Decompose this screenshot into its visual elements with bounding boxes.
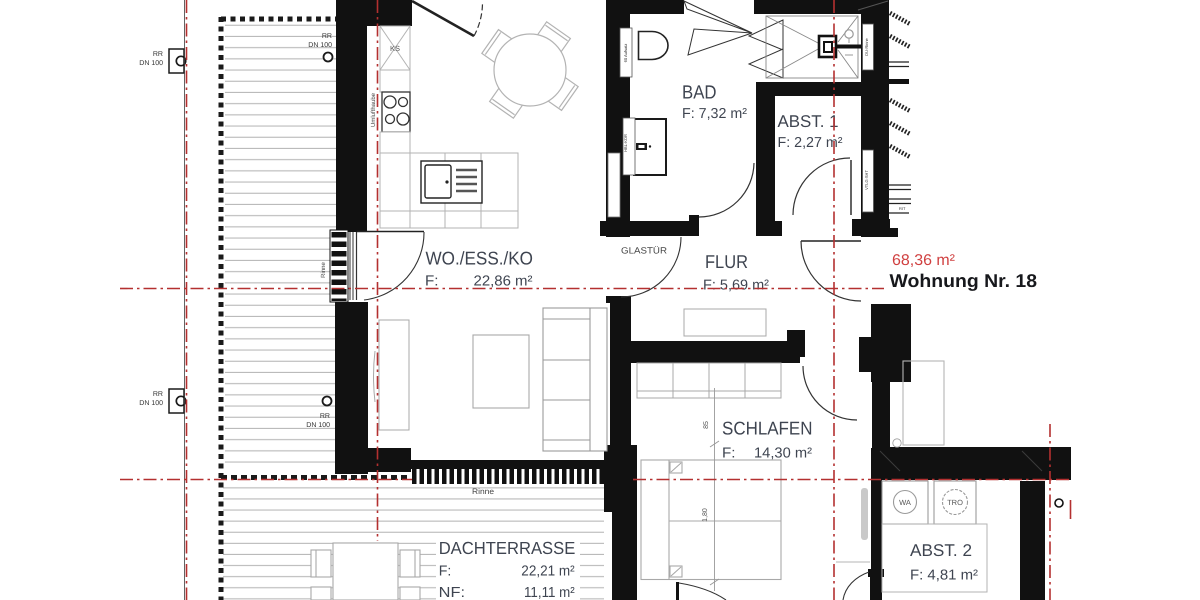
svg-text:RR: RR [320,413,330,420]
svg-text:SCHLAFEN: SCHLAFEN [722,418,813,439]
svg-text:ABST. 1: ABST. 1 [778,112,839,131]
svg-text:22,21 m²: 22,21 m² [521,564,575,580]
svg-text:F: 7,32 m²: F: 7,32 m² [682,106,747,122]
svg-text:F:: F: [722,446,736,462]
svg-text:Wohnung Nr. 18: Wohnung Nr. 18 [890,270,1038,291]
svg-text:Umlufthaube: Umlufthaube [370,92,377,127]
svg-text:Rinne: Rinne [320,262,327,278]
svg-text:WO./ESS./KO: WO./ESS./KO [426,248,534,269]
svg-text:DN 100: DN 100 [139,60,163,67]
svg-text:DACHTERRASSE: DACHTERRASSE [439,538,576,558]
svg-text:60 Aufsatz: 60 Aufsatz [623,44,628,63]
svg-text:WA: WA [899,498,911,507]
svg-text:VTLG-SHT: VTLG-SHT [864,170,869,190]
svg-text:NF:: NF: [439,585,465,600]
svg-text:DN 100: DN 100 [139,400,163,407]
svg-text:GLASTÜR: GLASTÜR [621,246,668,256]
svg-text:BAD: BAD [682,83,717,104]
svg-text:14,30 m²: 14,30 m² [754,446,812,462]
svg-text:DN 100: DN 100 [306,422,330,429]
svg-text:DU-Rinne: DU-Rinne [864,37,869,55]
svg-text:F:: F: [425,274,439,290]
svg-text:RIT: RIT [899,206,906,211]
svg-text:RR: RR [153,51,163,58]
svg-text:F:: F: [439,564,452,580]
svg-text:TRO: TRO [947,498,963,507]
svg-text:85: 85 [703,421,710,429]
svg-text:F: 2,27 m²: F: 2,27 m² [778,135,843,151]
svg-text:68,36 m²: 68,36 m² [892,252,955,269]
svg-text:RR: RR [322,33,332,40]
svg-text:11,11 m²: 11,11 m² [524,585,575,600]
svg-text:DN 100: DN 100 [308,42,332,49]
svg-text:KS: KS [390,44,400,53]
svg-text:FLUR: FLUR [705,251,748,272]
svg-text:F: 5,69 m²: F: 5,69 m² [703,278,769,294]
svg-text:F: 4,81 m²: F: 4,81 m² [910,568,978,584]
svg-text:22,86 m²: 22,86 m² [474,274,533,290]
svg-text:HBL-KOR: HBL-KOR [623,134,628,152]
svg-text:1,80: 1,80 [702,508,709,522]
svg-text:Rinne: Rinne [472,487,495,496]
svg-text:ABST. 2: ABST. 2 [910,541,972,560]
svg-text:RR: RR [153,391,163,398]
